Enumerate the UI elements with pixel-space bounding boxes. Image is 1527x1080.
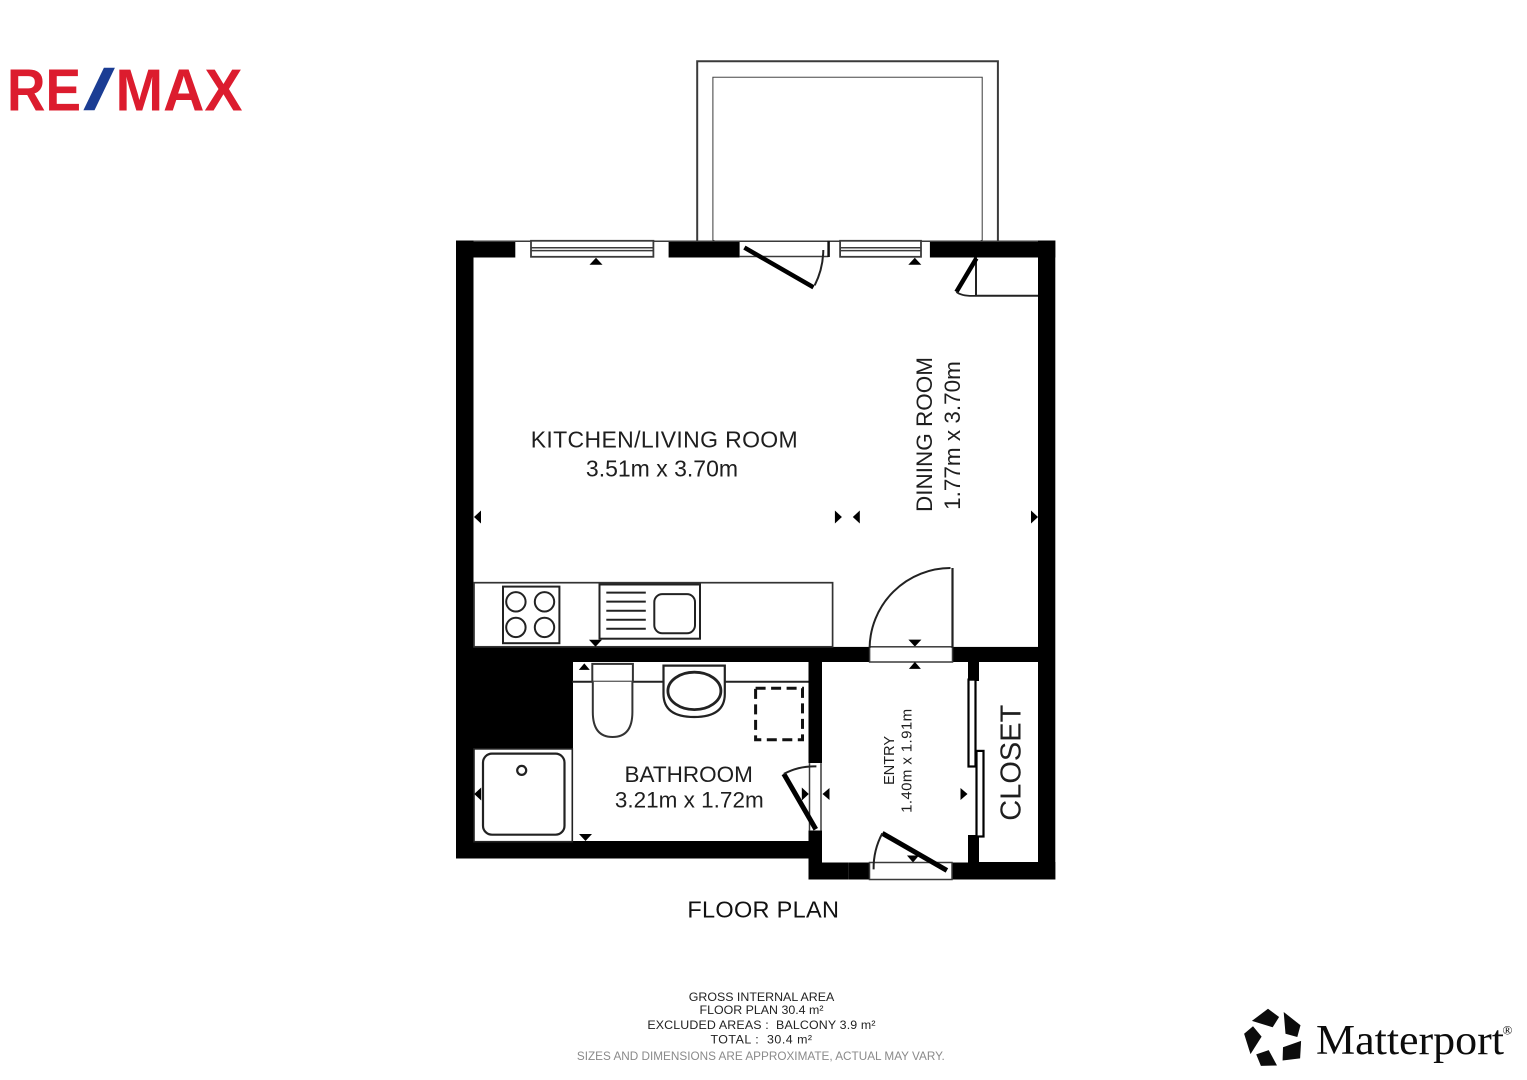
svg-text:1.40m x 1.91m: 1.40m x 1.91m (898, 708, 915, 812)
svg-text:Matterport: Matterport (1316, 1018, 1504, 1064)
svg-text:3.21m x 1.72m: 3.21m x 1.72m (615, 787, 764, 812)
svg-text:ENTRY: ENTRY (882, 736, 898, 785)
svg-text:BATHROOM: BATHROOM (625, 762, 753, 787)
svg-text:EXCLUDED AREAS : BALCONY 3.9: EXCLUDED AREAS : BALCONY 3.9 m² (647, 1018, 875, 1032)
svg-text:®: ® (1503, 1023, 1513, 1038)
svg-text:MAX: MAX (116, 58, 243, 124)
svg-text:3.51m x 3.70m: 3.51m x 3.70m (586, 455, 738, 481)
svg-text:SIZES AND DIMENSIONS ARE APPRO: SIZES AND DIMENSIONS ARE APPROXIMATE, AC… (577, 1050, 945, 1063)
svg-text:1.77m x 3.70m: 1.77m x 3.70m (940, 361, 965, 510)
svg-text:RE: RE (7, 58, 81, 124)
svg-text:GROSS INTERNAL AREA: GROSS INTERNAL AREA (689, 990, 835, 1004)
svg-text:KITCHEN/LIVING ROOM: KITCHEN/LIVING ROOM (531, 427, 798, 453)
svg-text:CLOSET: CLOSET (996, 704, 1028, 820)
svg-text:FLOOR PLAN: FLOOR PLAN (687, 896, 839, 922)
svg-text:TOTAL : 30.4 m²: TOTAL : 30.4 m² (710, 1033, 812, 1047)
svg-text:FLOOR PLAN 30.4 m²: FLOOR PLAN 30.4 m² (700, 1003, 824, 1017)
svg-text:DINING ROOM: DINING ROOM (912, 357, 937, 512)
